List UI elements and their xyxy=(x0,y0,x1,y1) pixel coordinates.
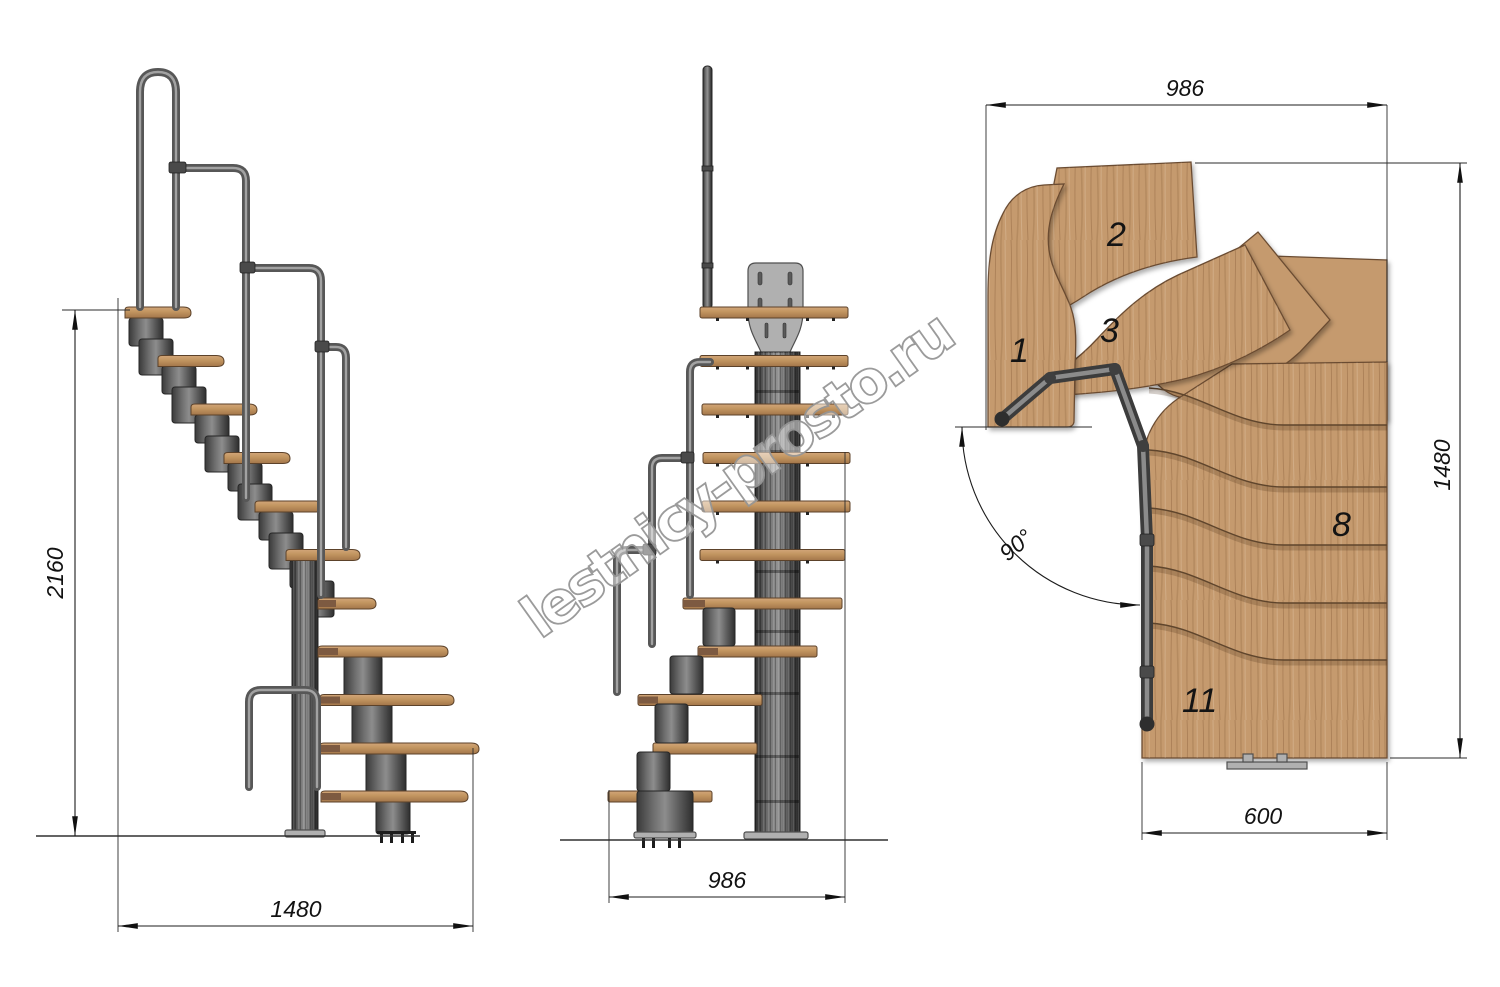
plan-view: 1 2 3 8 11 986 1480 600 90° xyxy=(955,75,1467,840)
dim-plan-turn-angle-label: 90° xyxy=(994,524,1037,566)
dim-plan-depth-label: 1480 xyxy=(1429,439,1455,490)
drawing-canvas: 2160 1480 xyxy=(0,0,1500,987)
step-number-2: 2 xyxy=(1106,216,1126,254)
technical-drawing: 2160 1480 xyxy=(0,0,1500,987)
plan-straight-treads xyxy=(1142,362,1387,758)
dim-plan-turn-angle: 90° xyxy=(955,427,1140,605)
dim-plan-exit-width: 600 xyxy=(1142,762,1387,840)
side-elevation-view: 2160 1480 xyxy=(36,72,479,932)
dim-plan-exit-width-label: 600 xyxy=(1244,803,1283,829)
dim-plan-width-label: 986 xyxy=(1166,75,1205,101)
dim-side-run-label: 1480 xyxy=(270,896,321,922)
step-number-1: 1 xyxy=(1010,332,1029,370)
front-top-post xyxy=(702,66,713,309)
step-number-8: 8 xyxy=(1332,506,1351,544)
step-number-11: 11 xyxy=(1182,682,1217,720)
step-number-3: 3 xyxy=(1100,312,1119,350)
dim-side-height-label: 2160 xyxy=(42,547,68,599)
dim-side-height: 2160 xyxy=(42,298,130,932)
dim-front-width-label: 986 xyxy=(708,867,747,893)
